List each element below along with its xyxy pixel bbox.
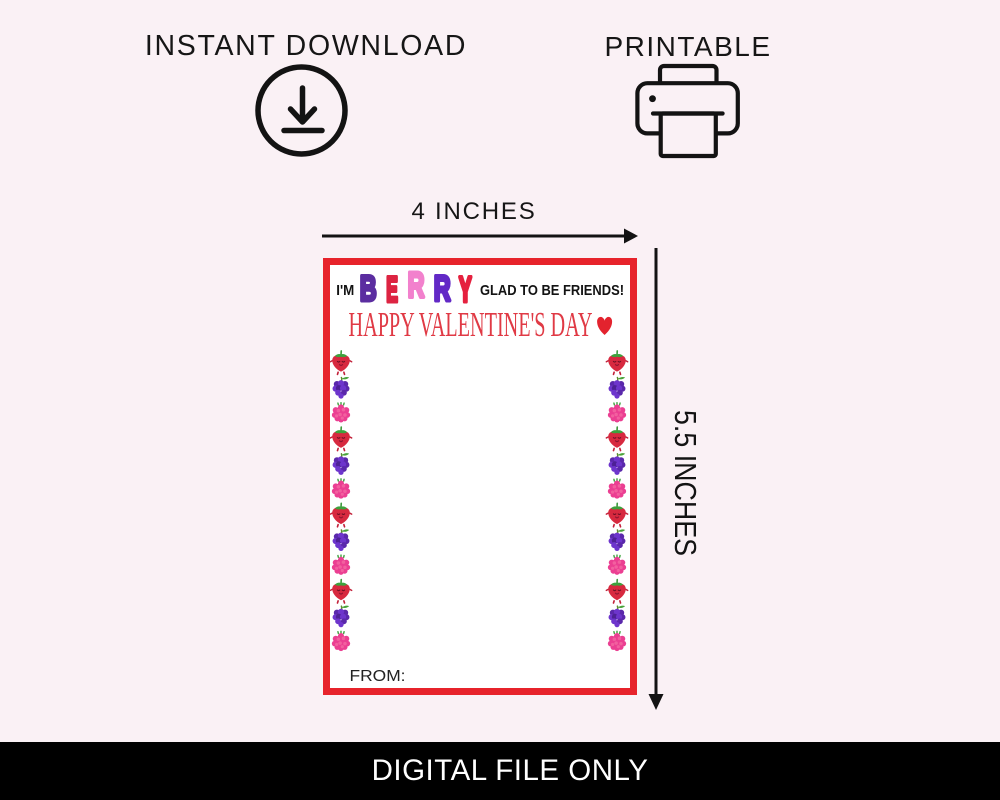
svg-text:5.5 INCHES: 5.5 INCHES [668, 410, 703, 556]
svg-text:R: R [434, 270, 451, 309]
svg-text:Y: Y [459, 269, 472, 309]
svg-text:R: R [408, 267, 425, 306]
svg-text:E: E [386, 270, 398, 309]
svg-text:I'M: I'M [336, 282, 354, 299]
svg-text:GLAD TO BE FRIENDS!: GLAD TO BE FRIENDS! [480, 282, 624, 299]
svg-text:B: B [360, 270, 377, 309]
svg-text:FROM:: FROM: [350, 668, 406, 685]
svg-text:HAPPY VALENTINE'S DAY: HAPPY VALENTINE'S DAY [349, 306, 593, 344]
